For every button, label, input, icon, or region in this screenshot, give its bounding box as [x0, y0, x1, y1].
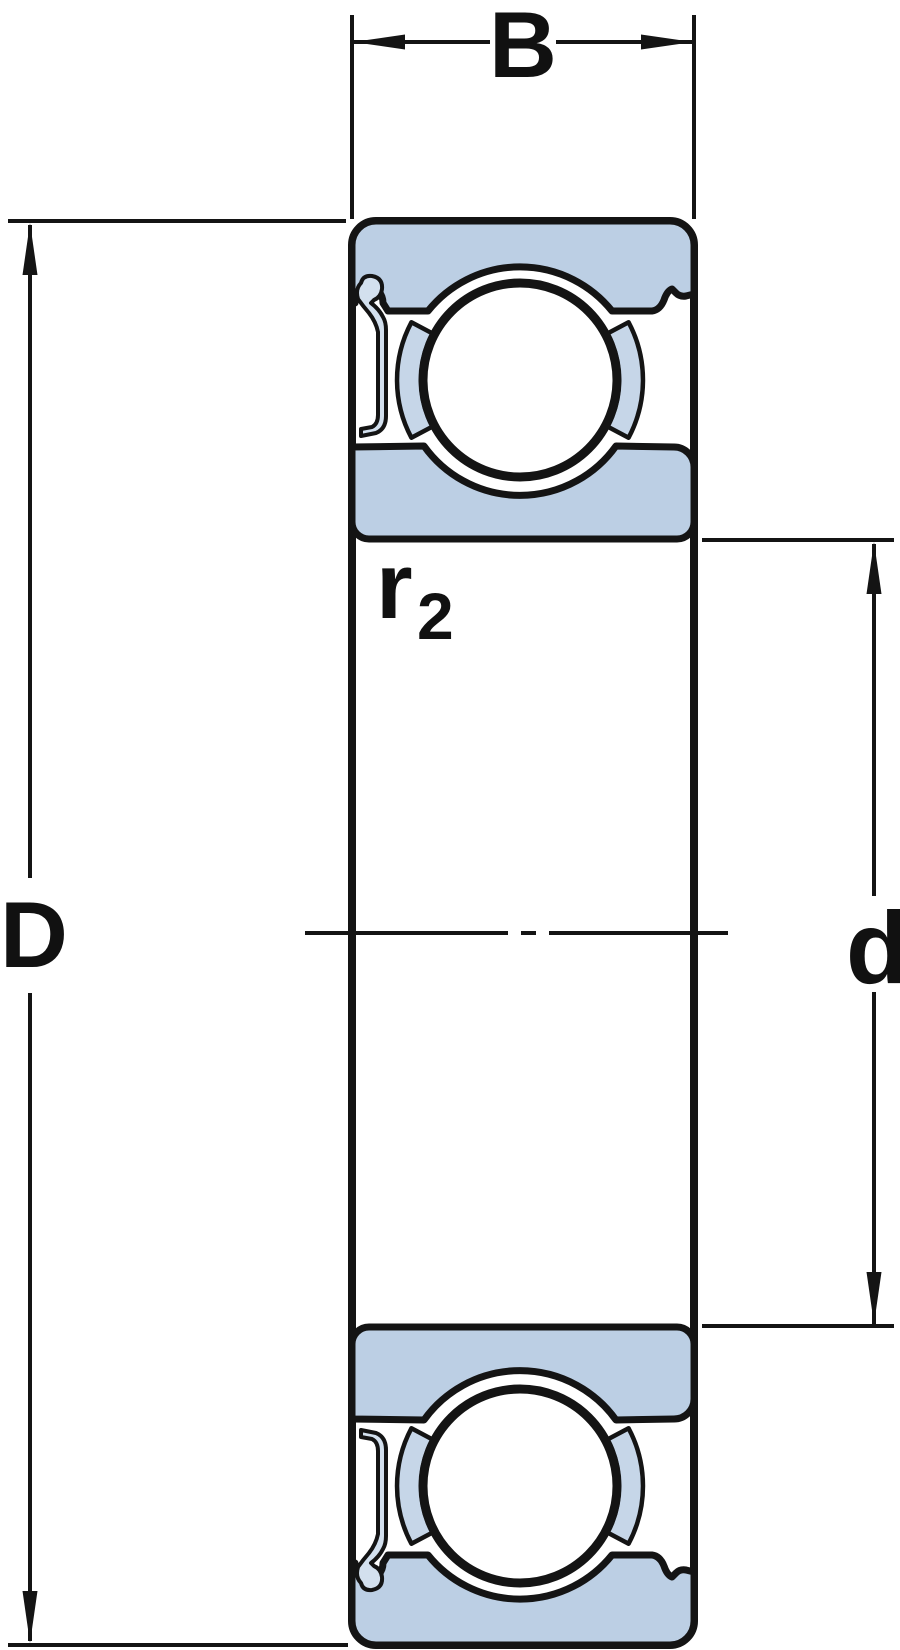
label-outer-diameter-D: D — [0, 882, 68, 987]
arrow-up-icon — [867, 542, 882, 594]
bearing-top-half-section — [352, 221, 694, 539]
arrow-left-icon — [353, 35, 405, 50]
ball — [423, 283, 617, 477]
label-fillet-radius-subscript: 2 — [417, 579, 454, 653]
arrow-up-icon — [23, 223, 38, 275]
arrow-right-icon — [641, 35, 693, 50]
arrow-down-icon — [867, 1272, 882, 1324]
label-bore-diameter-d: d — [846, 891, 900, 1005]
label-fillet-radius-r2: r 2 — [376, 533, 454, 653]
bearing-cross-section-diagram: B D d r 2 — [0, 0, 900, 1650]
bearing-bottom-half-section — [352, 1327, 694, 1645]
label-fillet-radius-base: r — [376, 533, 413, 638]
arrow-down-icon — [23, 1591, 38, 1643]
bearing-diagram-page: B D d r 2 — [0, 0, 900, 1650]
label-width-B: B — [489, 0, 557, 97]
